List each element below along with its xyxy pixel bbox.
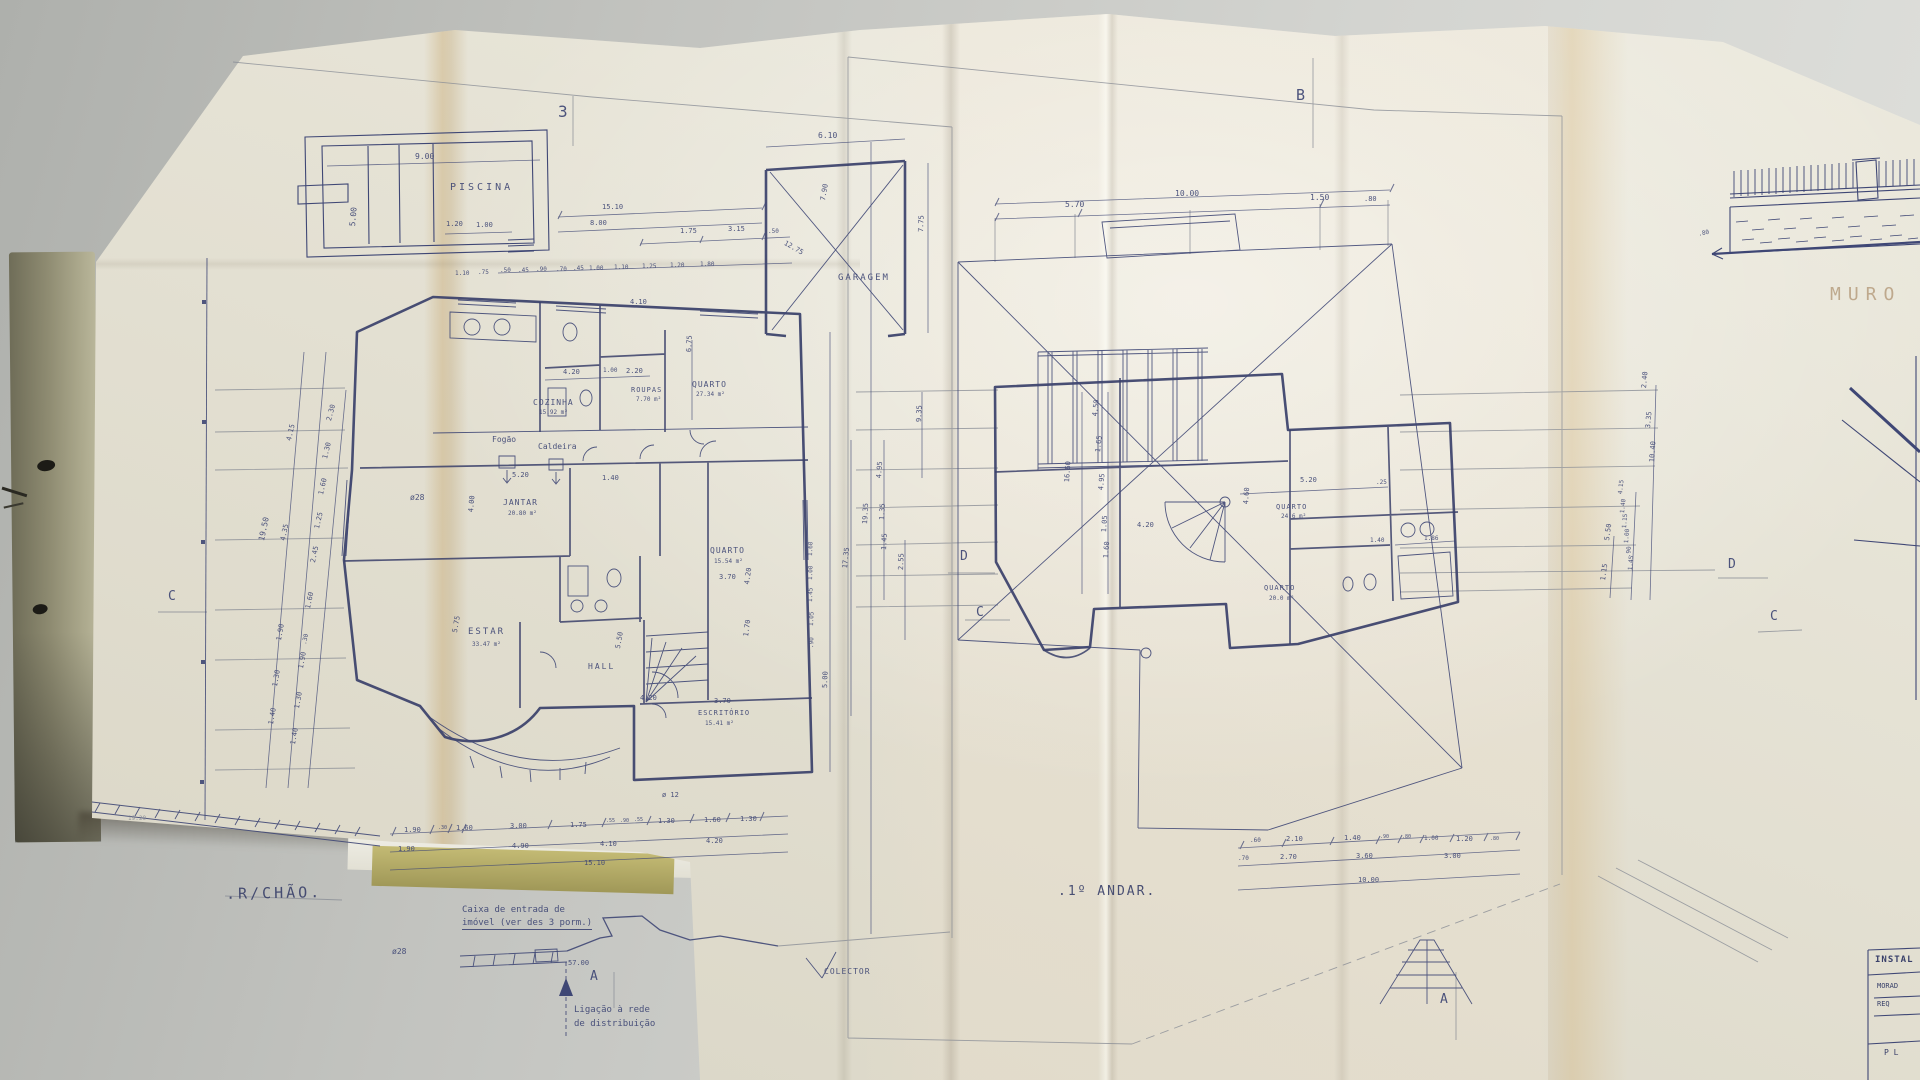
titleblock-row: P L [1884,1048,1898,1057]
fold-crease-horizontal [90,258,860,270]
titleblock-row: MORAD [1877,982,1898,990]
binding-thread [4,502,24,508]
sheet-title-ground-floor: .R/CHÃO. [226,883,323,903]
note-ligacao-2: de distribuição [574,1020,655,1029]
blueprint-paper [0,0,1920,1080]
note-ligacao: Ligação à rede [574,1006,650,1015]
note-caixa-2: imóvel (ver des 3 porm.) [462,919,592,930]
dim-text: 57.00 [568,960,589,967]
binding-hole [32,603,48,615]
spine-shadow [13,632,101,843]
fold-crease [424,0,468,1080]
binding-thread [2,487,28,498]
fold-crease [836,0,852,1080]
fold-crease [1548,0,1628,1080]
folder-cover [372,846,675,894]
titleblock-header: INSTAL [1875,955,1914,965]
fold-crease [1334,0,1350,1080]
binding-hole [36,459,55,473]
folder-spine [9,252,101,843]
titleblock-row: REQ [1877,1000,1890,1008]
marker-a: A [590,970,598,983]
sheet-title-first-floor: .1º ANDAR. [1058,884,1156,899]
note-caixa: Caixa de entrada de [462,906,565,915]
fold-crease [1098,0,1118,1080]
fold-crease [942,0,960,1080]
pipe-label: ø28 [392,948,406,956]
photo-of-blueprint: PISCINA9.005.001.201.00315.108.001.753.1… [0,0,1920,1080]
